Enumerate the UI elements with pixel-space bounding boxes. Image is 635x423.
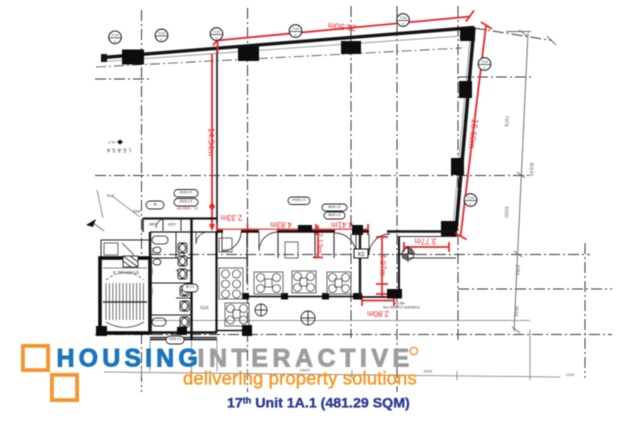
svg-text:e: e bbox=[402, 22, 404, 26]
svg-text:HOUSING: HOUSING bbox=[57, 345, 202, 373]
svg-text:3416: 3416 bbox=[513, 305, 519, 317]
svg-text:17-B: 17-B bbox=[185, 285, 194, 290]
svg-text:1074: 1074 bbox=[150, 287, 154, 294]
svg-text:TOA: TOA bbox=[158, 31, 166, 35]
svg-text:17th Unit 1A.1 (481.29 SQM): 17th Unit 1A.1 (481.29 SQM) bbox=[227, 396, 410, 412]
svg-text:2781: 2781 bbox=[514, 264, 520, 276]
svg-text:1175: 1175 bbox=[150, 248, 154, 255]
svg-text:TOA: TOA bbox=[399, 16, 407, 20]
svg-text:2.33m: 2.33m bbox=[221, 213, 243, 222]
svg-text:2.13m: 2.13m bbox=[315, 233, 324, 254]
svg-text:1680: 1680 bbox=[149, 222, 157, 226]
svg-text:e: e bbox=[114, 39, 116, 43]
svg-text:.D,T: .D,T bbox=[108, 140, 116, 145]
svg-text:1269: 1269 bbox=[566, 373, 574, 377]
svg-text:e: e bbox=[161, 37, 163, 41]
svg-text:METAL: METAL bbox=[393, 301, 404, 305]
svg-text:TOA: TOA bbox=[213, 30, 221, 34]
svg-text:LEASA: LEASA bbox=[105, 147, 131, 153]
svg-text:17-E01: 17-E01 bbox=[168, 337, 182, 342]
svg-text:TOA: TOA bbox=[292, 27, 300, 31]
svg-text:2407: 2407 bbox=[222, 248, 230, 252]
svg-text:TOA: TOA bbox=[111, 33, 119, 37]
svg-text:4.41m: 4.41m bbox=[331, 220, 353, 229]
svg-text:e: e bbox=[295, 33, 297, 37]
svg-text:delivering property solutions: delivering property solutions bbox=[183, 368, 417, 389]
svg-text:2.80m: 2.80m bbox=[367, 309, 389, 318]
svg-text:TOA: TOA bbox=[481, 60, 489, 64]
svg-text:4930: 4930 bbox=[423, 369, 433, 374]
svg-text:STAIR NO. 4: STAIR NO. 4 bbox=[113, 270, 139, 275]
svg-text:17-E02: 17-E02 bbox=[179, 199, 193, 204]
svg-text:POWDER COATED FIN.: POWDER COATED FIN. bbox=[382, 305, 419, 309]
svg-text:1925: 1925 bbox=[168, 222, 176, 226]
svg-text:6100: 6100 bbox=[503, 206, 509, 218]
svg-text:4.97m: 4.97m bbox=[378, 254, 387, 277]
svg-text:EL. +8860 MF: EL. +8860 MF bbox=[176, 206, 197, 210]
svg-text:1053: 1053 bbox=[150, 267, 154, 274]
svg-text:STD.: STD. bbox=[199, 305, 209, 310]
svg-text:17-E03: 17-E03 bbox=[179, 190, 193, 195]
svg-text:K3: K3 bbox=[358, 252, 364, 258]
svg-text:R15: R15 bbox=[107, 194, 114, 198]
svg-text:17-E04: 17-E04 bbox=[292, 197, 306, 202]
svg-text:30143: 30143 bbox=[528, 162, 534, 176]
svg-text:7375: 7375 bbox=[503, 115, 509, 127]
svg-text:TOA: TOA bbox=[467, 196, 475, 200]
svg-text:17-E06: 17-E06 bbox=[327, 213, 341, 218]
svg-text:B: B bbox=[153, 202, 156, 207]
svg-text:17-E05: 17-E05 bbox=[327, 205, 341, 210]
svg-text:3.77m: 3.77m bbox=[415, 237, 437, 246]
svg-text:e: e bbox=[216, 36, 218, 40]
svg-text:e: e bbox=[470, 202, 472, 206]
svg-text:e: e bbox=[484, 66, 486, 70]
svg-text:14.54m: 14.54m bbox=[206, 128, 216, 157]
svg-text:4.83m: 4.83m bbox=[270, 220, 292, 229]
